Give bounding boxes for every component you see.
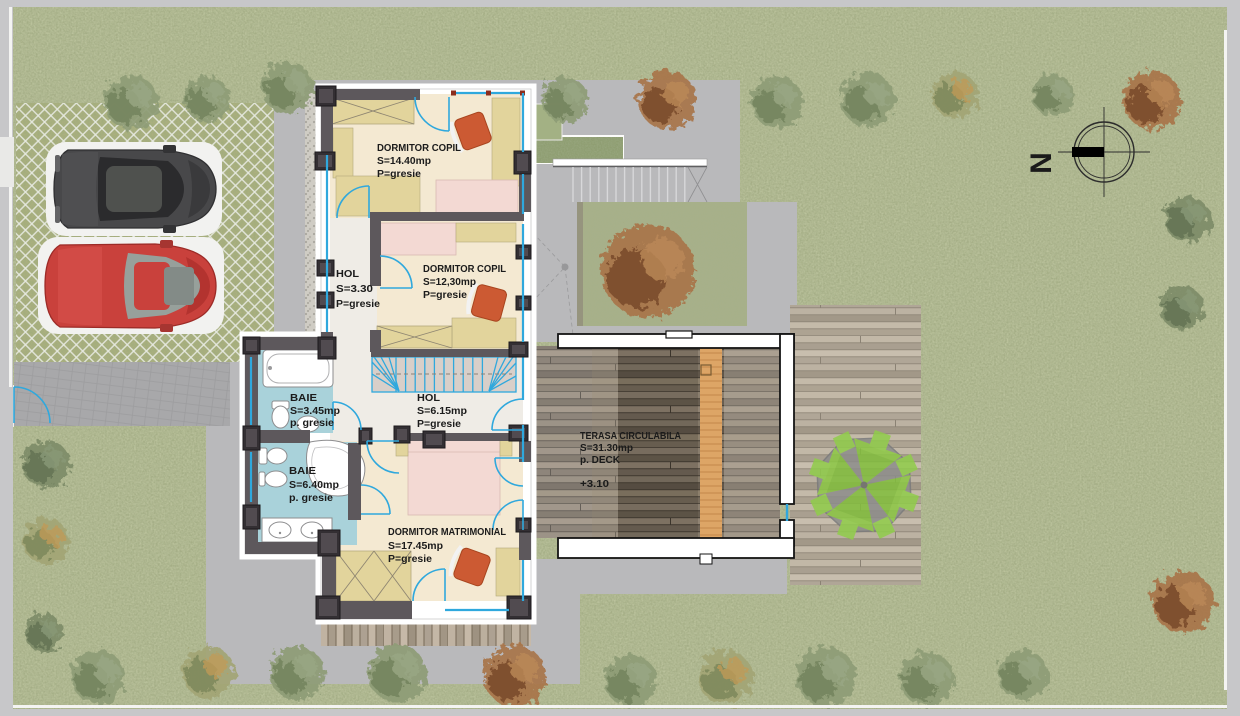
svg-text:DORMITOR COPIL: DORMITOR COPIL: [377, 142, 462, 154]
svg-text:P=gresie: P=gresie: [336, 298, 380, 310]
svg-text:S=6.40mp: S=6.40mp: [289, 479, 339, 491]
svg-text:p. gresie: p. gresie: [289, 492, 333, 504]
svg-text:S=31.30mp: S=31.30mp: [580, 442, 633, 454]
svg-text:HOL: HOL: [417, 392, 441, 404]
svg-text:S=14.40mp: S=14.40mp: [377, 155, 431, 167]
svg-text:P=gresie: P=gresie: [423, 289, 467, 301]
svg-text:HOL: HOL: [336, 268, 360, 280]
svg-text:S=12,30mp: S=12,30mp: [423, 276, 476, 288]
svg-text:P=gresie: P=gresie: [388, 553, 432, 565]
svg-text:+3.10: +3.10: [580, 478, 609, 490]
svg-text:DORMITOR COPIL: DORMITOR COPIL: [423, 263, 507, 275]
svg-text:S=3.30: S=3.30: [336, 283, 373, 295]
svg-text:S=3.45mp: S=3.45mp: [290, 406, 340, 417]
svg-text:P=gresie: P=gresie: [377, 168, 421, 180]
svg-text:N: N: [1025, 152, 1058, 174]
svg-text:S=6.15mp: S=6.15mp: [417, 405, 467, 417]
svg-text:p. DECK: p. DECK: [580, 454, 620, 466]
svg-text:BAIE: BAIE: [289, 465, 316, 477]
svg-text:S=17.45mp: S=17.45mp: [388, 540, 443, 552]
svg-text:p. gresie: p. gresie: [290, 418, 334, 429]
svg-text:TERASA CIRCULABILA: TERASA CIRCULABILA: [580, 430, 681, 442]
svg-text:P=gresie: P=gresie: [417, 418, 461, 430]
svg-text:BAIE: BAIE: [290, 393, 317, 404]
svg-text:DORMITOR MATRIMONIAL: DORMITOR MATRIMONIAL: [388, 526, 507, 538]
